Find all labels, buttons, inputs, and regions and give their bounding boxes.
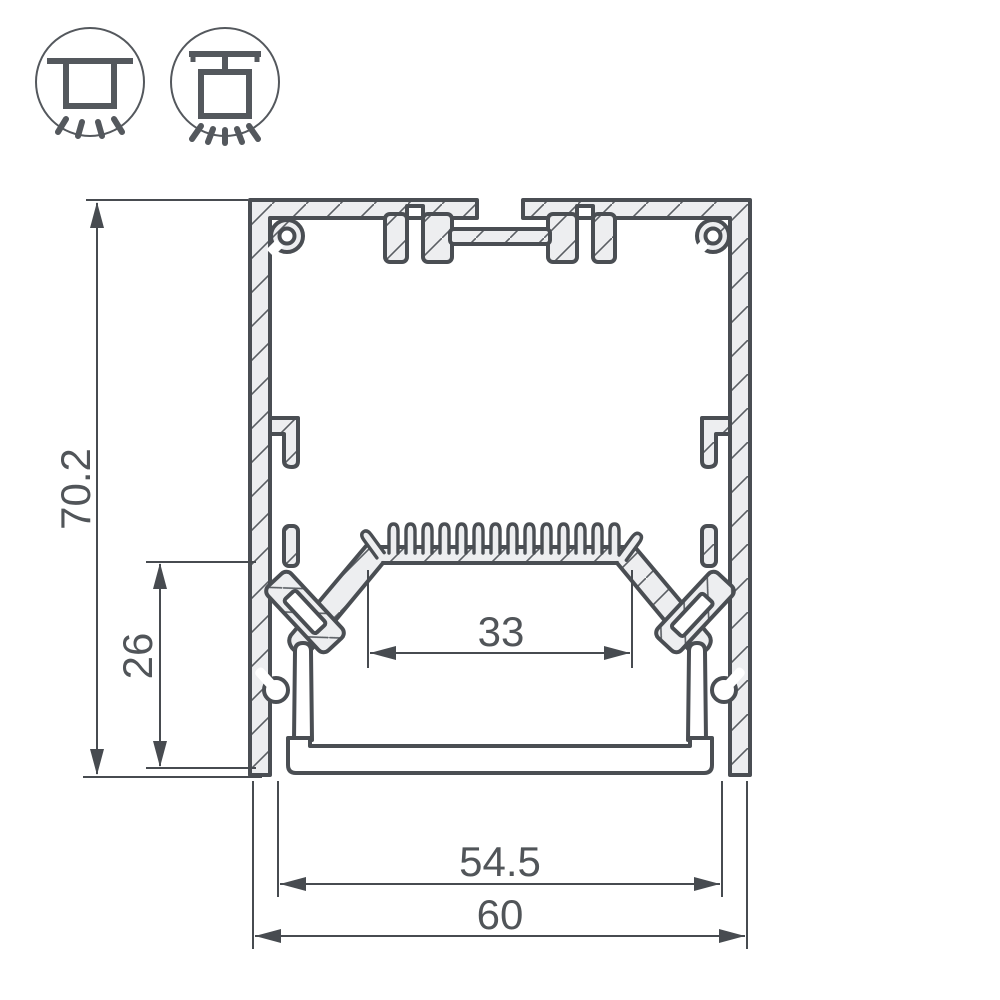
dimension-overall-height: 70.2 — [52, 200, 262, 777]
pendant-luminaire-icon — [171, 28, 279, 143]
wall-tab-right — [702, 526, 716, 566]
dimension-led-shelf-width: 33 — [368, 570, 632, 668]
dim-label-70-2: 70.2 — [52, 448, 99, 530]
dim-label-26: 26 — [114, 633, 161, 680]
diffuser-clip-left — [294, 643, 312, 740]
screw-boss-top-right — [692, 220, 729, 257]
dim-label-54-5: 54.5 — [459, 838, 541, 885]
plate-notch-left — [407, 206, 423, 218]
top-center-bridge — [450, 229, 550, 244]
diffuser-tray — [288, 738, 712, 773]
wall-hook-left — [270, 418, 298, 467]
dimension-inner-width: 54.5 — [278, 781, 722, 897]
wall-hook-right — [702, 418, 730, 467]
surface-mount-luminaire-icon — [36, 28, 144, 136]
technical-drawing-page: 70.2 26 33 54.5 60 — [0, 0, 1000, 1000]
dim-label-33: 33 — [478, 608, 525, 655]
dim-label-60: 60 — [477, 891, 524, 938]
profile-cross-section — [250, 200, 750, 775]
plate-notch-right — [577, 206, 593, 218]
wall-tab-left — [284, 526, 298, 566]
diffuser-clip-right — [688, 643, 706, 740]
profile-drawing-svg: 70.2 26 33 54.5 60 — [0, 0, 1000, 1000]
dimension-inner-height: 26 — [114, 562, 256, 768]
